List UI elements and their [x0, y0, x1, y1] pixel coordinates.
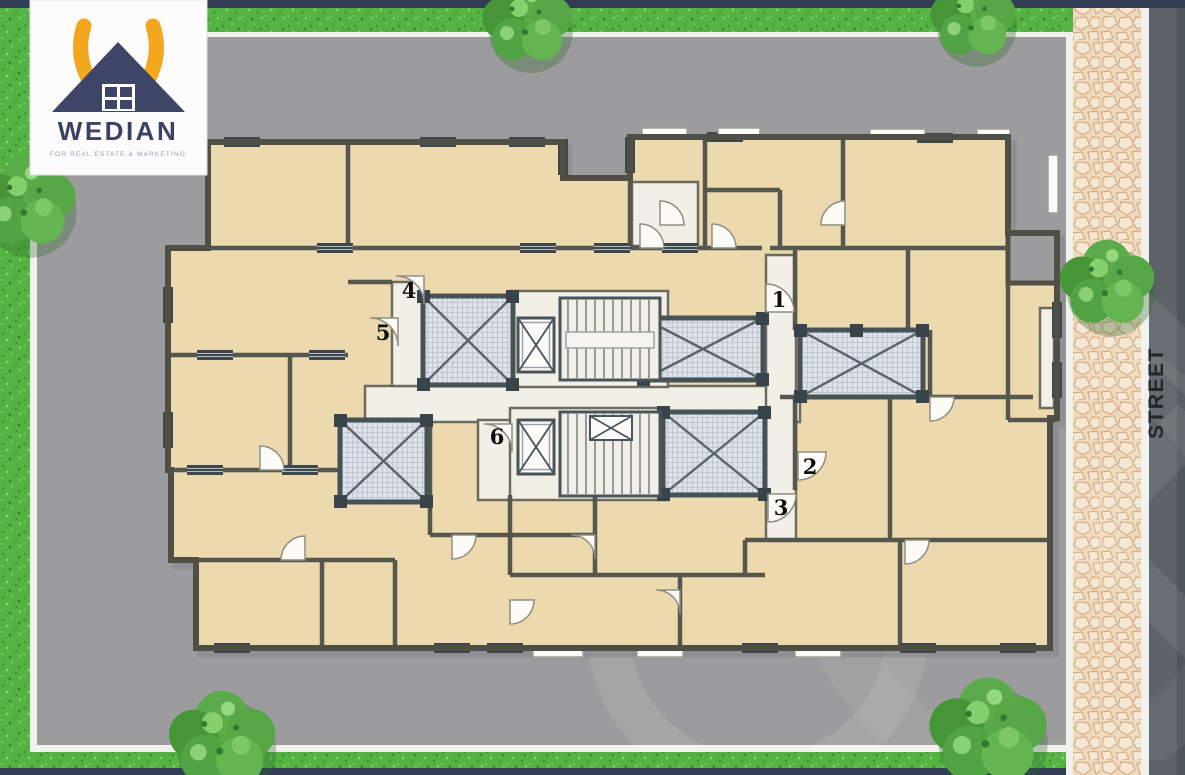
right-loggia	[1040, 308, 1054, 408]
light-well	[334, 414, 433, 508]
sidewalk-curb-line	[1066, 8, 1073, 775]
logo-house-window	[102, 84, 135, 111]
brand-name: WEDIAN	[58, 116, 178, 146]
brand-tagline: FOR REAL ESTATE & MARKETING	[50, 151, 186, 158]
unit-number-3: 3	[774, 495, 789, 520]
elevator-lower	[518, 420, 554, 474]
balcony	[1048, 155, 1058, 213]
unit-number-1: 1	[772, 287, 787, 312]
site-plan-scene: 1 2 3 4 5 6 STREET	[0, 0, 1185, 775]
elevator-upper	[518, 318, 554, 372]
street-label: STREET	[1145, 347, 1168, 439]
floor-plan-poster: 1 2 3 4 5 6 STREET	[0, 0, 1185, 775]
unit-number-2: 2	[803, 454, 818, 479]
unit-number-5: 5	[376, 320, 391, 345]
shaft-box	[590, 416, 632, 440]
light-well	[417, 290, 519, 391]
grass-left	[0, 8, 30, 768]
light-well	[794, 324, 929, 403]
light-well	[657, 406, 771, 501]
grass-bottom	[0, 752, 1066, 768]
right-notch	[1008, 233, 1057, 283]
stair-core-lower	[560, 412, 660, 496]
stair-core-upper	[560, 298, 660, 380]
unit-number-6: 6	[490, 424, 505, 449]
unit-number-4: 4	[402, 278, 417, 303]
building-floor-plan: 1 2 3 4 5 6	[163, 128, 1062, 657]
wedian-logo-card: WEDIAN FOR REAL ESTATE & MARKETING	[30, 0, 207, 175]
